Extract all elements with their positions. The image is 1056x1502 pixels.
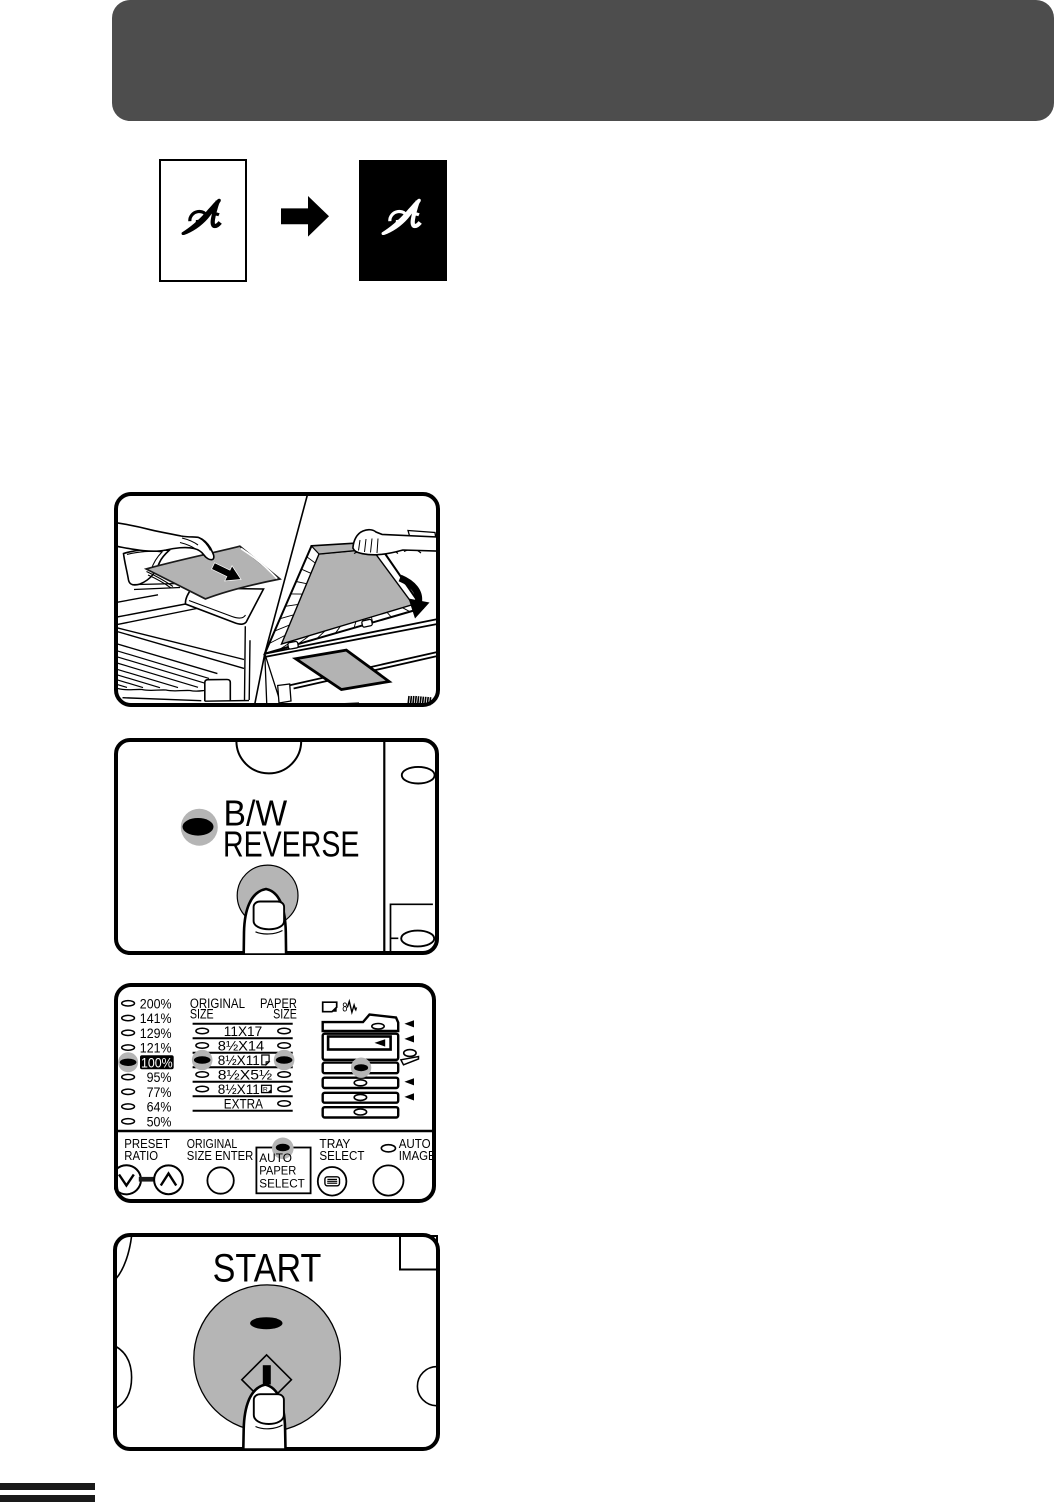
svg-text:95%: 95% [147, 1069, 172, 1085]
svg-text:R: R [263, 1087, 268, 1094]
svg-text:PAPER: PAPER [259, 1163, 296, 1177]
svg-text:8½X5½: 8½X5½ [218, 1067, 273, 1083]
svg-text:IMAGE: IMAGE [399, 1148, 436, 1163]
svg-text:8: 8 [342, 1001, 347, 1015]
svg-text:SIZE ENTER: SIZE ENTER [187, 1148, 254, 1163]
svg-text:SIZE: SIZE [190, 1007, 214, 1022]
svg-text:141%: 141% [140, 1010, 172, 1026]
svg-text:129%: 129% [140, 1025, 172, 1041]
svg-text:SELECT: SELECT [259, 1176, 305, 1190]
svg-text:EXTRA: EXTRA [224, 1096, 264, 1112]
svg-text:200%: 200% [140, 995, 172, 1011]
svg-text:SIZE: SIZE [273, 1007, 297, 1022]
svg-text:REVERSE: REVERSE [223, 824, 359, 865]
svg-text:START: START [213, 1247, 322, 1291]
svg-text:50%: 50% [147, 1113, 172, 1129]
svg-text:RATIO: RATIO [124, 1148, 158, 1163]
svg-text:SELECT: SELECT [319, 1148, 364, 1163]
svg-text:77%: 77% [147, 1084, 172, 1100]
svg-text:100%: 100% [141, 1054, 173, 1070]
svg-text:121%: 121% [140, 1040, 172, 1056]
svg-text:64%: 64% [147, 1099, 172, 1115]
